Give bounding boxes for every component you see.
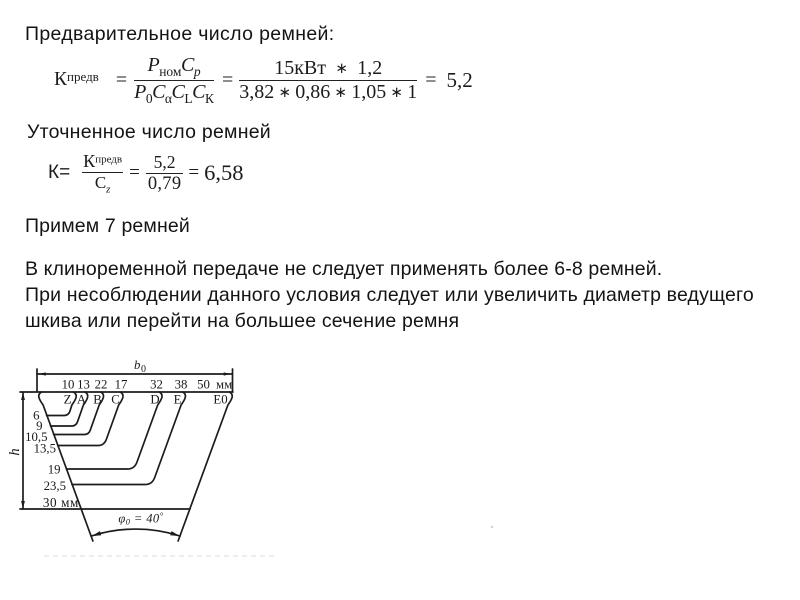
svg-text:φ0 = 40°: φ0 = 40° bbox=[118, 511, 163, 527]
svg-text:E: E bbox=[174, 393, 182, 407]
svg-text:13,5: 13,5 bbox=[34, 442, 56, 456]
svg-text:13: 13 bbox=[77, 378, 90, 392]
svg-text:17: 17 bbox=[115, 378, 128, 392]
svg-text:C: C bbox=[111, 393, 120, 407]
svg-text:h: h bbox=[7, 448, 23, 455]
svg-text:мм: мм bbox=[216, 378, 232, 392]
svg-text:b: b bbox=[134, 358, 141, 372]
svg-text:0: 0 bbox=[141, 364, 146, 375]
svg-text:32: 32 bbox=[150, 378, 163, 392]
svg-text:A: A bbox=[77, 393, 87, 407]
svg-text:D: D bbox=[150, 393, 159, 407]
svg-text:19: 19 bbox=[48, 463, 61, 477]
svg-text:30 мм: 30 мм bbox=[43, 495, 79, 510]
svg-text:B: B bbox=[93, 393, 102, 407]
svg-text:23,5: 23,5 bbox=[44, 479, 66, 493]
svg-text:38: 38 bbox=[175, 378, 188, 392]
svg-text:10: 10 bbox=[62, 378, 75, 392]
svg-text:50: 50 bbox=[197, 378, 210, 392]
svg-text:E0: E0 bbox=[213, 393, 227, 407]
svg-text:22: 22 bbox=[95, 378, 108, 392]
svg-text:Z: Z bbox=[64, 393, 72, 407]
